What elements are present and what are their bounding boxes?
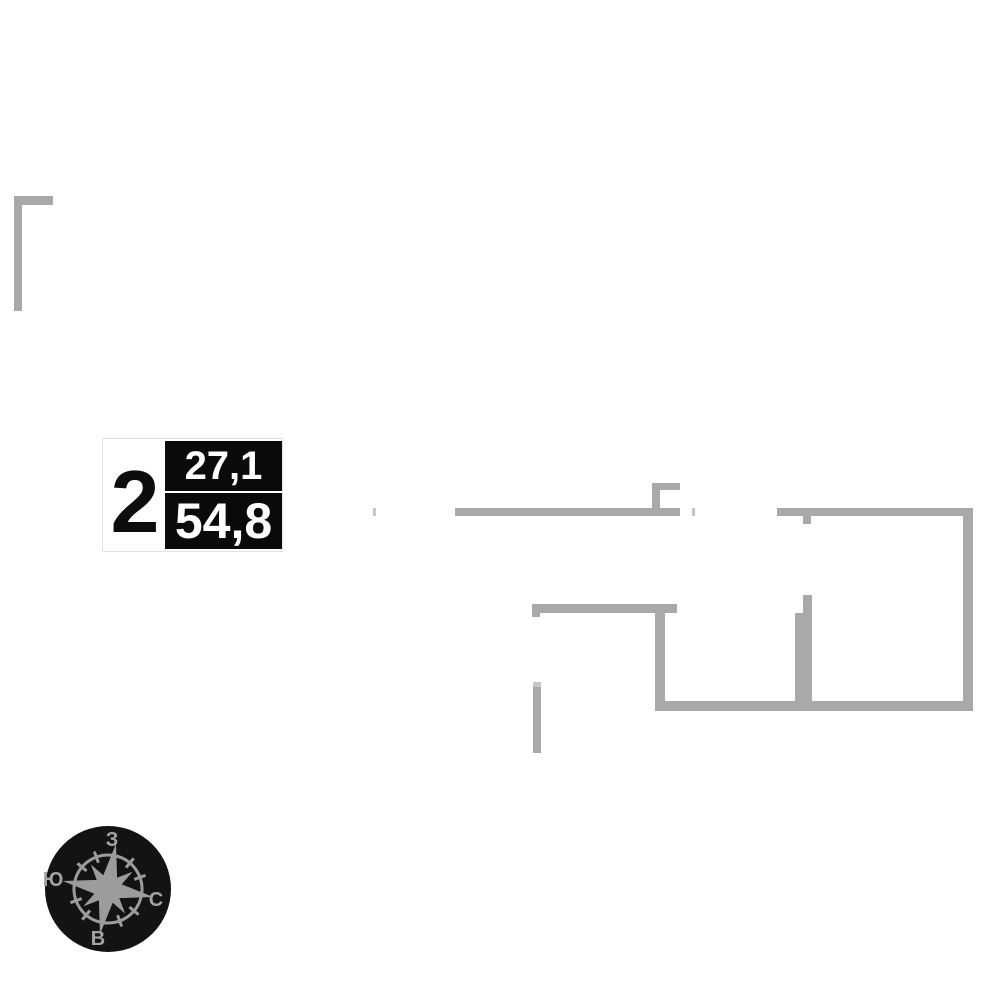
room-count: 2 [103, 446, 165, 558]
living-area-value: 27,1 [185, 446, 263, 486]
area-badges: 27,1 54,8 [165, 439, 282, 551]
wall-segment [655, 604, 665, 711]
wall-segment [777, 508, 973, 516]
living-area-badge: 27,1 [165, 441, 282, 491]
wall-segment [963, 508, 973, 711]
unit-info-card[interactable]: 2 27,1 54,8 [102, 438, 283, 552]
wall-segment [803, 595, 812, 701]
wall-segment [532, 613, 540, 617]
wall-segment [655, 701, 973, 711]
wall-segment [14, 196, 22, 311]
wall-segment [652, 483, 680, 490]
wall-segment [455, 508, 680, 516]
wall-segment [14, 196, 53, 205]
wall-segment [795, 613, 803, 701]
total-area-value: 54,8 [175, 496, 272, 546]
floor-plan-canvas: 2 27,1 54,8 [0, 0, 1000, 1000]
wall-segment [533, 687, 541, 753]
wall-segment [692, 508, 695, 516]
wall-segment [373, 508, 376, 516]
wall-segment [803, 516, 811, 524]
total-area-badge: 54,8 [165, 493, 282, 549]
